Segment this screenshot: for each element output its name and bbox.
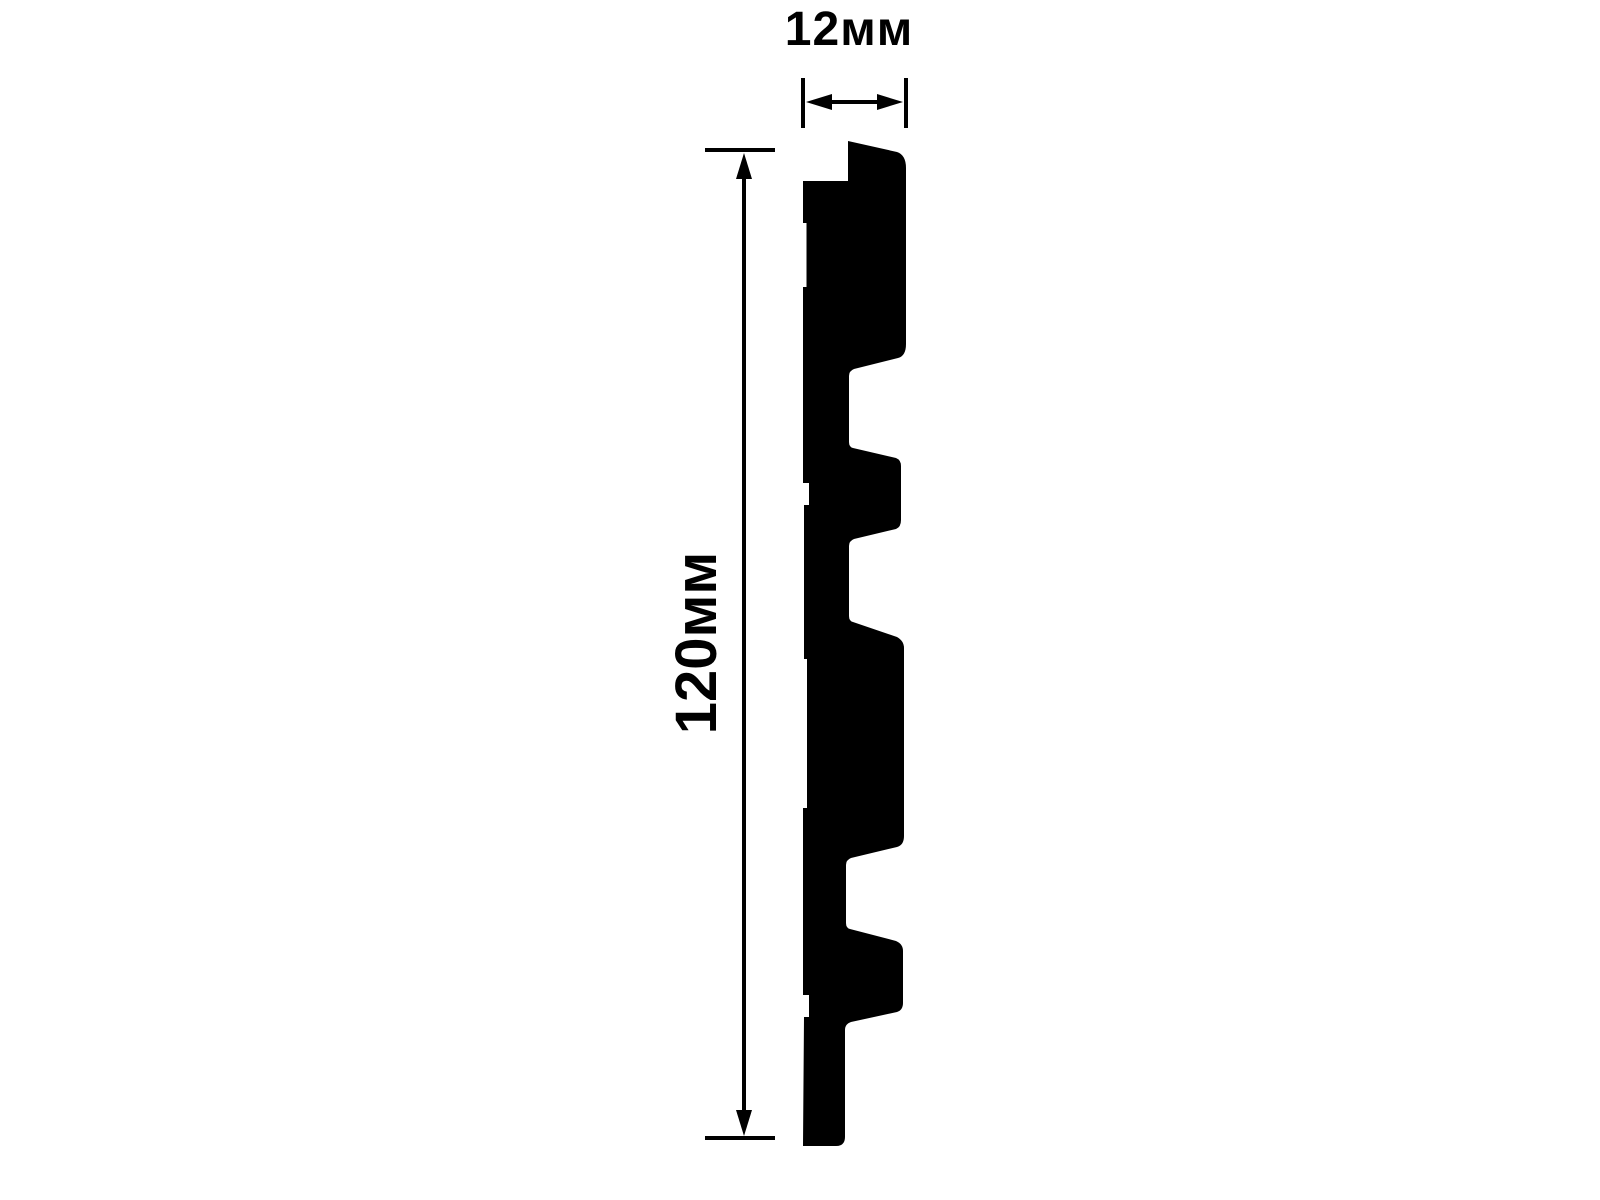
height-dim-arrowhead-bottom bbox=[736, 1110, 752, 1136]
profile-drawing bbox=[0, 0, 1600, 1200]
height-dim-arrowhead-top bbox=[736, 153, 752, 179]
panel-profile-shape bbox=[803, 141, 906, 1146]
height-dimension-label: 120мм bbox=[668, 552, 726, 735]
width-dim-arrowhead-left bbox=[806, 94, 832, 110]
width-dim-arrowhead-right bbox=[877, 94, 903, 110]
width-dimension bbox=[803, 78, 906, 128]
drawing-canvas: 12мм 120мм bbox=[0, 0, 1600, 1200]
width-dimension-label: 12мм bbox=[785, 6, 913, 54]
